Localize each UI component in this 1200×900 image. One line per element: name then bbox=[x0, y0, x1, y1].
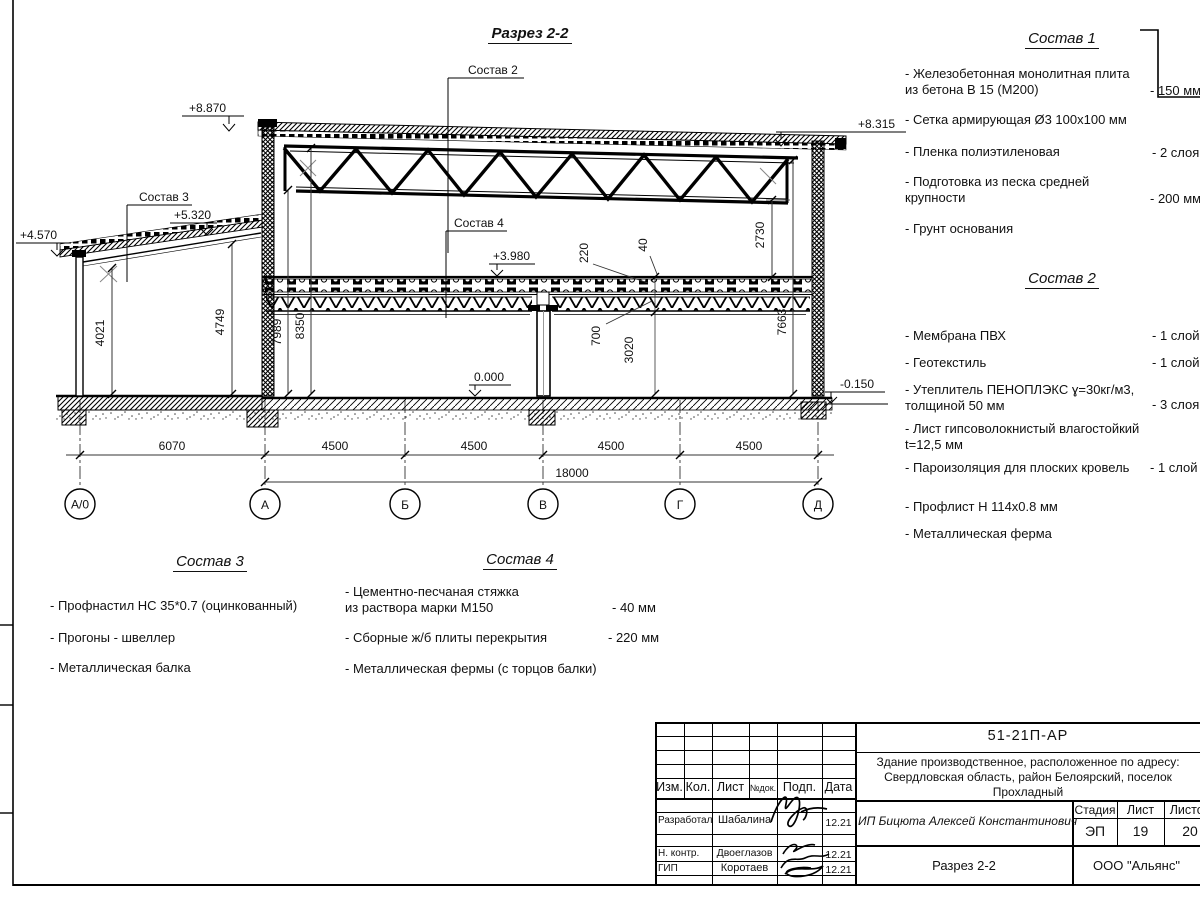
person-name: Коротаев bbox=[712, 862, 777, 874]
material-item: - Железобетонная монолитная плита из бет… bbox=[905, 66, 1150, 97]
material-item: - Профнастил НС 35*0.7 (оцинкованный) bbox=[50, 598, 310, 614]
ground-slab bbox=[56, 396, 888, 427]
project-line: Прохладный bbox=[860, 785, 1196, 799]
axis-label: А/0 bbox=[71, 498, 89, 512]
roof-truss bbox=[284, 146, 798, 203]
material-item: - Подготовка из песка средней крупности bbox=[905, 174, 1150, 205]
axis-bubbles: А/0 А Б В Г Д bbox=[65, 489, 833, 519]
sheet-value: 19 bbox=[1117, 823, 1164, 839]
sostav2-title: Состав 2 bbox=[917, 270, 1200, 287]
axis-label: В bbox=[539, 498, 547, 512]
signature-kontrol-gip bbox=[777, 836, 835, 882]
axis-label: Г bbox=[677, 498, 684, 512]
title-block: Изм. Кол. Лист №док. Подп. Дата Разработ… bbox=[655, 722, 1200, 886]
page-title: Разрез 2-2 bbox=[468, 25, 592, 42]
col-list: Лист bbox=[712, 780, 749, 794]
elevation-label: +5.320 bbox=[174, 208, 211, 222]
material-value: - 220 мм bbox=[608, 630, 659, 645]
material-item: - Грунт основания bbox=[905, 221, 1150, 237]
project-line: Свердловская область, район Белоярский, … bbox=[860, 770, 1196, 784]
drawing-sheet: Состав 2 Состав 3 Состав 4 +8.870 +8.315… bbox=[0, 0, 1200, 900]
material-item: - Металлическая фермы (с торцов балки) bbox=[345, 661, 615, 677]
elevation-label: +8.870 bbox=[189, 101, 226, 115]
doc-number: 51-21П-АР bbox=[856, 728, 1200, 744]
dim-label: 7663 bbox=[775, 308, 789, 335]
material-value: - 200 мм bbox=[1150, 191, 1200, 206]
material-item: - Сетка армирующая Ø3 100x100 мм bbox=[905, 112, 1150, 128]
sheets-value: 20 bbox=[1164, 823, 1200, 839]
stage-label: Стадия bbox=[1073, 803, 1117, 817]
sheets-label: Листов bbox=[1164, 803, 1200, 817]
dim-label: 220 bbox=[577, 243, 591, 263]
elevation-label: +4.570 bbox=[20, 228, 57, 242]
material-value: - 1 слой bbox=[1152, 328, 1200, 343]
material-item: - Металлическая ферма bbox=[905, 526, 1150, 542]
role: Разработал bbox=[658, 815, 712, 826]
annex-structure bbox=[60, 214, 263, 396]
stage-value: ЭП bbox=[1073, 823, 1117, 839]
organization: ООО "Альянс" bbox=[1073, 858, 1200, 873]
vertical-dimensions: 4021 4749 7989 8350 220 40 700 3020 2730… bbox=[93, 144, 797, 398]
leader-label: Состав 3 bbox=[139, 190, 189, 204]
material-item: - Цементно-песчаная стяжка из раствора м… bbox=[345, 584, 605, 615]
material-value: - 40 мм bbox=[612, 600, 656, 615]
project-line: Здание производственное, расположенное п… bbox=[860, 755, 1196, 769]
elevation-label: -0.150 bbox=[840, 377, 874, 391]
material-item: - Пароизоляция для плоских кровель bbox=[905, 460, 1150, 476]
leader-label: Состав 4 bbox=[454, 216, 504, 230]
material-item: - Сборные ж/б плиты перекрытия bbox=[345, 630, 605, 646]
dim-label: 4749 bbox=[213, 308, 227, 335]
material-item: - Мембрана ПВХ bbox=[905, 328, 1150, 344]
material-value: - 1 слой bbox=[1152, 355, 1200, 370]
sostav3-title: Состав 3 bbox=[100, 553, 320, 570]
material-item: - Прогоны - швеллер bbox=[50, 630, 310, 646]
person-name: Двоеглазов bbox=[712, 847, 777, 859]
sheet-label: Лист bbox=[1117, 803, 1164, 817]
dim-label: 4500 bbox=[461, 439, 488, 453]
dim-label: 700 bbox=[589, 326, 603, 346]
dim-label: 8350 bbox=[293, 312, 307, 339]
dim-label: 6070 bbox=[159, 439, 186, 453]
material-value: - 2 слоя bbox=[1152, 145, 1199, 160]
dim-label: 4500 bbox=[736, 439, 763, 453]
material-value: - 150 мм bbox=[1150, 83, 1200, 98]
material-value: - 3 слоя bbox=[1152, 397, 1199, 412]
col-kol: Кол. bbox=[684, 780, 712, 794]
dim-ticks bbox=[76, 451, 822, 486]
sostav1-title: Состав 1 bbox=[917, 30, 1200, 47]
drawing-name: Разрез 2-2 bbox=[856, 858, 1072, 873]
elevation-label: 0.000 bbox=[474, 370, 504, 384]
material-value: - 1 слой bbox=[1150, 460, 1198, 475]
col-izm: Изм. bbox=[655, 780, 684, 794]
elevation-label: +8.315 bbox=[858, 117, 895, 131]
dim-label: 2730 bbox=[753, 221, 767, 248]
axis-label: А bbox=[261, 498, 269, 512]
sostav4-title: Состав 4 bbox=[410, 551, 630, 568]
dim-label: 4500 bbox=[322, 439, 349, 453]
material-item: - Профлист Н 114х0.8 мм bbox=[905, 499, 1150, 515]
dim-label: 3020 bbox=[622, 336, 636, 363]
elevation-label: +3.980 bbox=[493, 249, 530, 263]
leader-label: Состав 2 bbox=[468, 63, 518, 77]
role: ГИП bbox=[658, 863, 712, 874]
material-item: - Утеплитель ПЕНОПЛЭКС ɣ=30кг/м3, толщин… bbox=[905, 382, 1155, 413]
designer: ИП Бицюта Алексей Константинович bbox=[858, 814, 1071, 828]
roof-package bbox=[258, 122, 846, 150]
dim-label: 4021 bbox=[93, 319, 107, 346]
horizontal-dimensions: 6070 4500 4500 4500 4500 18000 bbox=[66, 439, 834, 486]
material-item: - Геотекстиль bbox=[905, 355, 1150, 371]
mid-floor bbox=[262, 277, 812, 396]
dim-label: 4500 bbox=[598, 439, 625, 453]
dim-label: 7989 bbox=[270, 318, 284, 345]
dim-label: 40 bbox=[636, 238, 650, 252]
material-item: - Пленка полиэтиленовая bbox=[905, 144, 1150, 160]
signature-razrabotal bbox=[767, 788, 829, 836]
dim-label: 18000 bbox=[555, 466, 589, 480]
material-item: - Металлическая балка bbox=[50, 660, 310, 676]
material-item: - Лист гипсоволокнистый влагостойкий t=1… bbox=[905, 421, 1155, 452]
role: Н. контр. bbox=[658, 848, 712, 859]
axis-label: Б bbox=[401, 498, 409, 512]
axis-label: Д bbox=[814, 498, 822, 512]
